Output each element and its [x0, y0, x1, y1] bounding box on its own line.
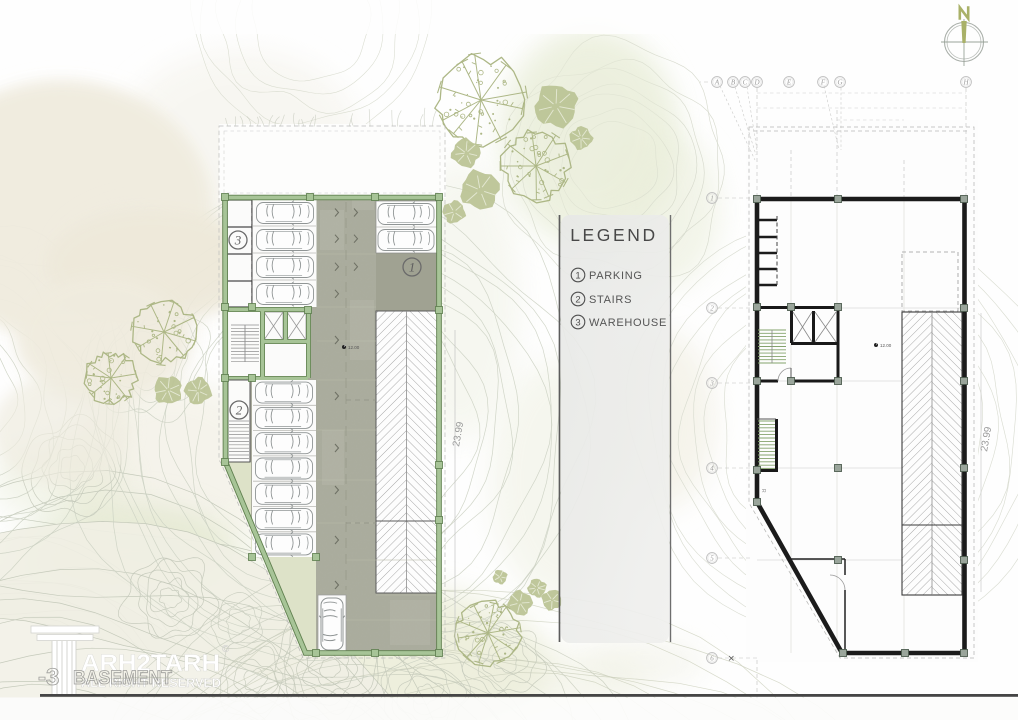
svg-text:2: 2: [236, 403, 243, 418]
svg-text:R: R: [760, 489, 766, 493]
svg-text:12.00: 12.00: [348, 345, 360, 350]
svg-text:C: C: [743, 79, 748, 87]
svg-text:12.00: 12.00: [880, 343, 892, 348]
svg-text:STAIRS: STAIRS: [589, 294, 632, 306]
svg-text:-3: -3: [38, 664, 59, 691]
svg-text:F: F: [820, 79, 826, 87]
svg-text:LEGEND: LEGEND: [570, 225, 658, 245]
svg-text:3: 3: [234, 233, 242, 248]
svg-text:1: 1: [710, 195, 714, 203]
svg-text:BASEMENT: BASEMENT: [73, 668, 172, 689]
svg-text:D: D: [753, 79, 759, 87]
svg-text:H: H: [962, 79, 969, 87]
svg-text:A: A: [714, 79, 720, 87]
svg-text:©: ©: [222, 644, 230, 655]
svg-text:WAREHOUSE: WAREHOUSE: [589, 317, 667, 329]
svg-text:1: 1: [409, 260, 416, 275]
svg-text:3: 3: [575, 317, 580, 328]
svg-text:6: 6: [710, 655, 714, 663]
svg-text:3: 3: [709, 380, 714, 388]
svg-text:4: 4: [710, 465, 714, 473]
svg-text:E: E: [786, 79, 792, 87]
svg-text:B: B: [731, 79, 736, 87]
svg-text:2: 2: [710, 305, 714, 313]
svg-text:1: 1: [575, 270, 580, 281]
svg-text:G: G: [837, 79, 842, 87]
svg-text:5: 5: [710, 555, 714, 563]
svg-text:PARKING: PARKING: [589, 270, 643, 282]
svg-text:2: 2: [575, 294, 580, 305]
